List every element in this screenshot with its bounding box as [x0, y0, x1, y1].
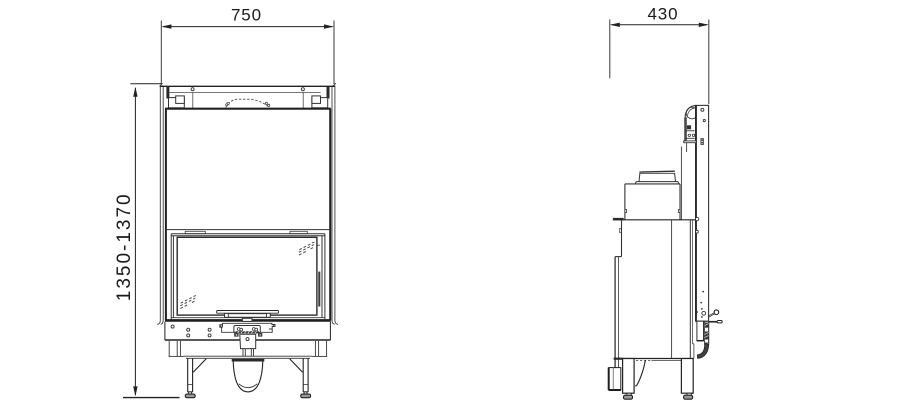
svg-text:430: 430 [647, 5, 678, 24]
svg-text:750: 750 [231, 6, 262, 25]
svg-text:1350-1370: 1350-1370 [114, 192, 135, 301]
